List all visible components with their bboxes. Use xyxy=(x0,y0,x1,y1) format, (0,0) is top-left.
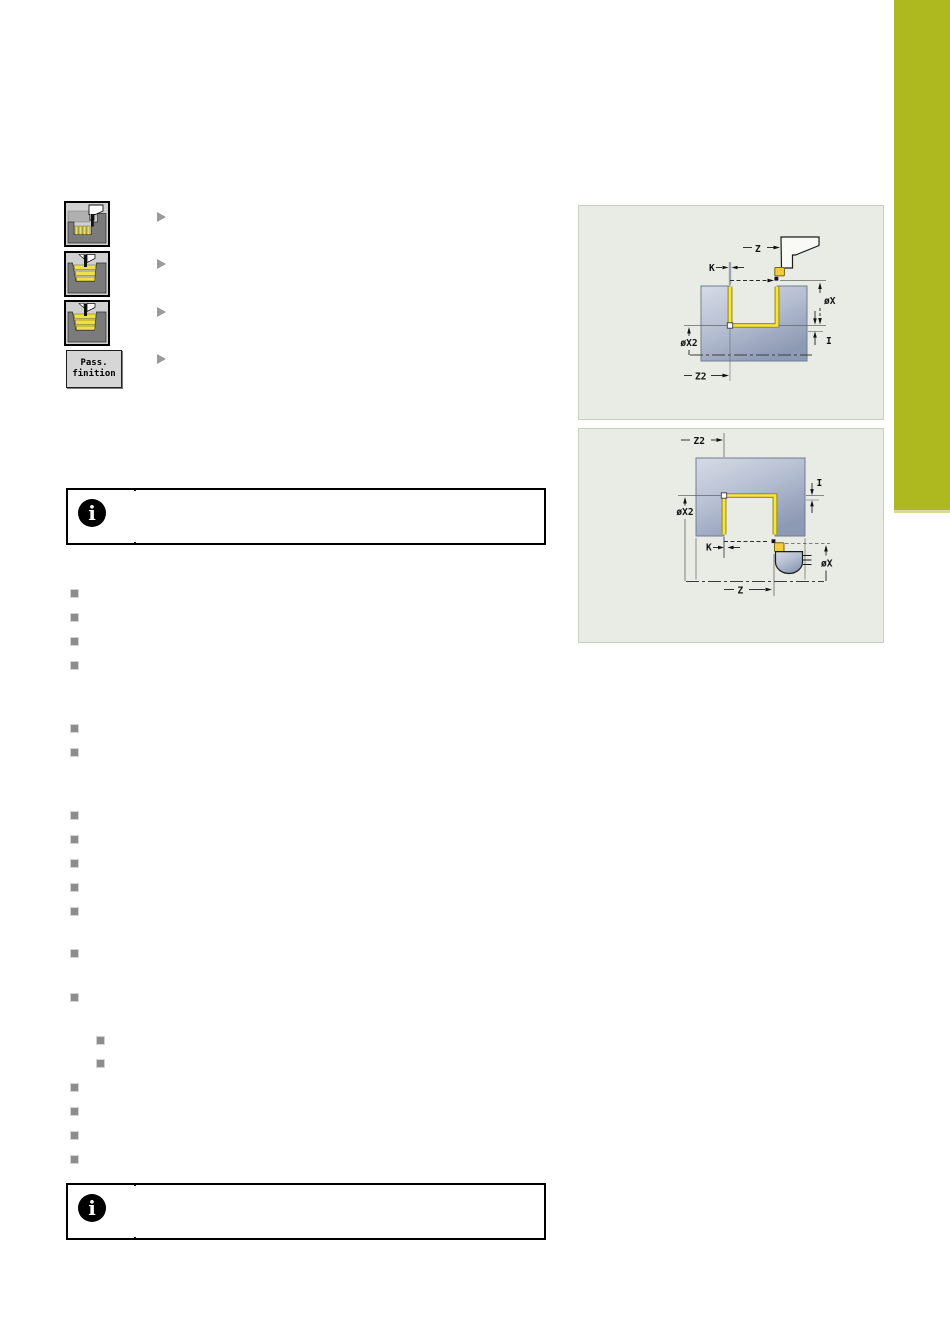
list-bullet-indented xyxy=(96,1059,105,1068)
softkey-recess-roughing xyxy=(64,201,110,247)
dim-label-z: Z xyxy=(755,244,761,255)
finishing-pass-label-line1: Pass. xyxy=(80,358,107,369)
step-arrow-icon xyxy=(157,259,166,269)
finishing-pass-softkey: Pass. finition xyxy=(66,350,122,388)
list-bullet xyxy=(70,835,79,844)
step-arrow-icon xyxy=(157,307,166,317)
info-icon-glyph: i xyxy=(88,501,96,525)
chapter-color-tab xyxy=(894,0,950,513)
note-divider-tick xyxy=(134,488,136,491)
dim-label-i: I xyxy=(817,478,823,489)
dim-label-i: I xyxy=(826,336,832,347)
list-bullet xyxy=(70,1083,79,1092)
note-divider-tick xyxy=(134,1237,136,1240)
dim-label-k: K xyxy=(709,263,715,274)
dim-label-ox2: øX2 xyxy=(680,338,697,349)
contour-start-node xyxy=(727,323,732,328)
list-bullet xyxy=(70,748,79,757)
list-bullet xyxy=(70,613,79,622)
dim-label-k: K xyxy=(706,543,712,554)
cutting-tool xyxy=(776,552,803,574)
dim-label-z2: Z2 xyxy=(695,372,706,383)
recess-finishing-internal-diagram: Z2 I øX2 K xyxy=(578,428,884,643)
list-bullet xyxy=(70,1155,79,1164)
tool-start-node xyxy=(775,277,779,281)
list-bullet xyxy=(70,637,79,646)
contour-start-node xyxy=(721,493,726,498)
list-bullet xyxy=(70,993,79,1002)
list-bullet xyxy=(70,949,79,958)
recess-roughing-cycle-icon xyxy=(64,201,110,247)
dim-label-ox: øX xyxy=(821,559,833,570)
list-bullet xyxy=(70,907,79,916)
info-note-box: i xyxy=(66,1183,546,1240)
list-bullet xyxy=(70,661,79,670)
manual-page: Pass. finition i xyxy=(0,0,950,1344)
dim-label-ox: øX xyxy=(824,296,836,307)
softkey-recess-finishing xyxy=(64,251,110,297)
list-bullet xyxy=(70,883,79,892)
dim-label-z2: Z2 xyxy=(694,436,705,447)
step-arrow-icon xyxy=(157,212,166,222)
finishing-pass-label-line2: finition xyxy=(72,369,115,380)
softkey-recess-finishing-extended xyxy=(64,300,110,346)
list-bullet-indented xyxy=(96,1036,105,1045)
info-note-box: i xyxy=(66,488,546,545)
info-icon-glyph: i xyxy=(88,1196,96,1220)
tool-insert xyxy=(775,543,785,552)
list-bullet xyxy=(70,589,79,598)
info-icon: i xyxy=(77,498,107,528)
dim-label-ox2: øX2 xyxy=(676,507,693,518)
note-divider-tick xyxy=(134,1183,136,1186)
tool-insert xyxy=(775,268,785,276)
dim-label-z: Z xyxy=(738,586,744,597)
step-arrow-icon xyxy=(157,354,166,364)
list-bullet xyxy=(70,859,79,868)
recess-finishing-external-diagram: Z K øX I øX2 Z2 xyxy=(578,205,884,420)
recess-finishing-extended-cycle-icon xyxy=(64,300,110,346)
info-icon: i xyxy=(77,1193,107,1223)
list-bullet xyxy=(70,1131,79,1140)
list-bullet xyxy=(70,811,79,820)
list-bullet xyxy=(70,724,79,733)
recess-finishing-cycle-icon xyxy=(64,251,110,297)
note-divider-tick xyxy=(134,542,136,545)
list-bullet xyxy=(70,1107,79,1116)
